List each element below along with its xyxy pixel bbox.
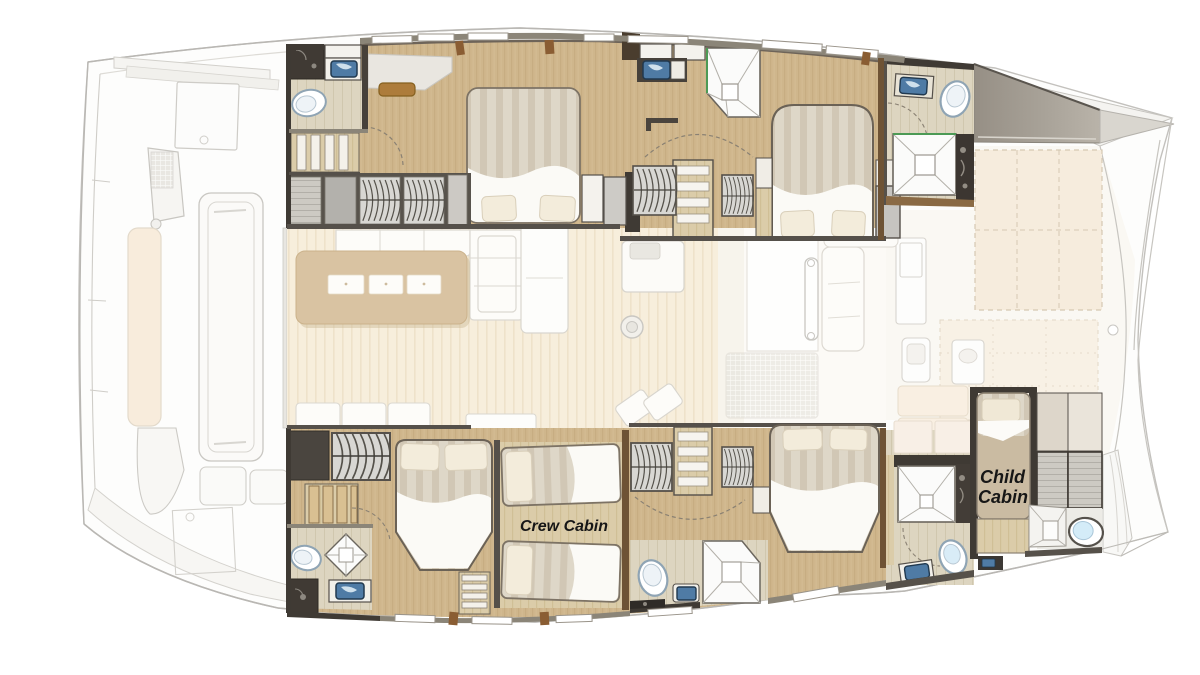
svg-text:Cabin: Cabin — [978, 487, 1028, 507]
svg-text:Crew Cabin: Crew Cabin — [520, 518, 608, 535]
svg-text:Child: Child — [980, 467, 1026, 487]
